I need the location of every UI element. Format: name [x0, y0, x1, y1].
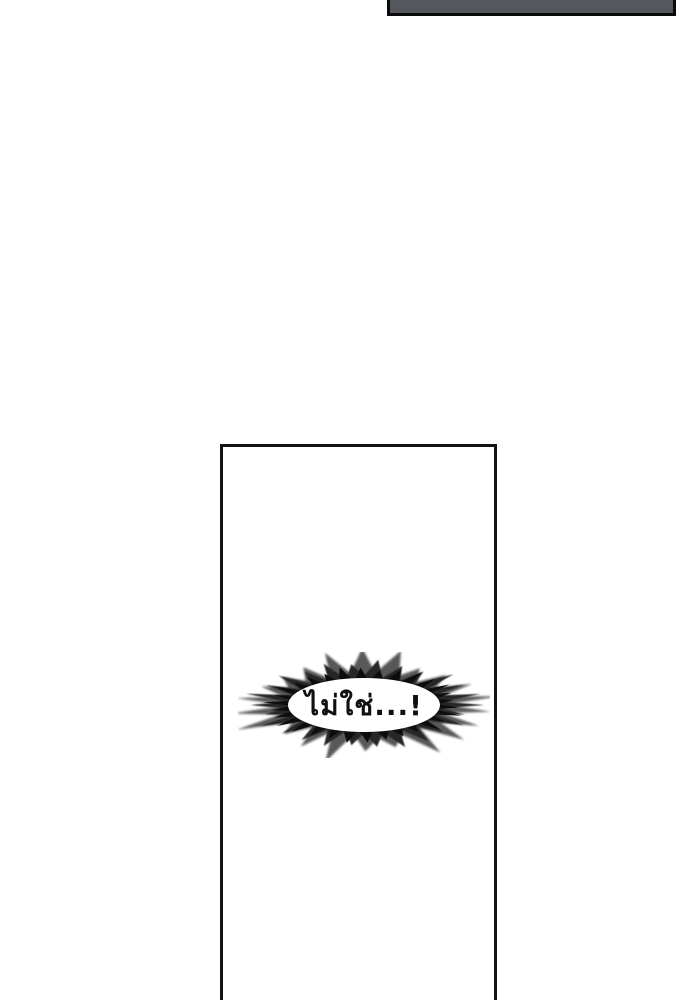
speech-burst-text: ไม่ใช่...!: [238, 652, 490, 758]
comic-page: ไม่ใช่...!: [0, 0, 700, 1000]
previous-panel-fragment: [387, 0, 676, 16]
speech-burst: ไม่ใช่...!: [238, 652, 490, 758]
